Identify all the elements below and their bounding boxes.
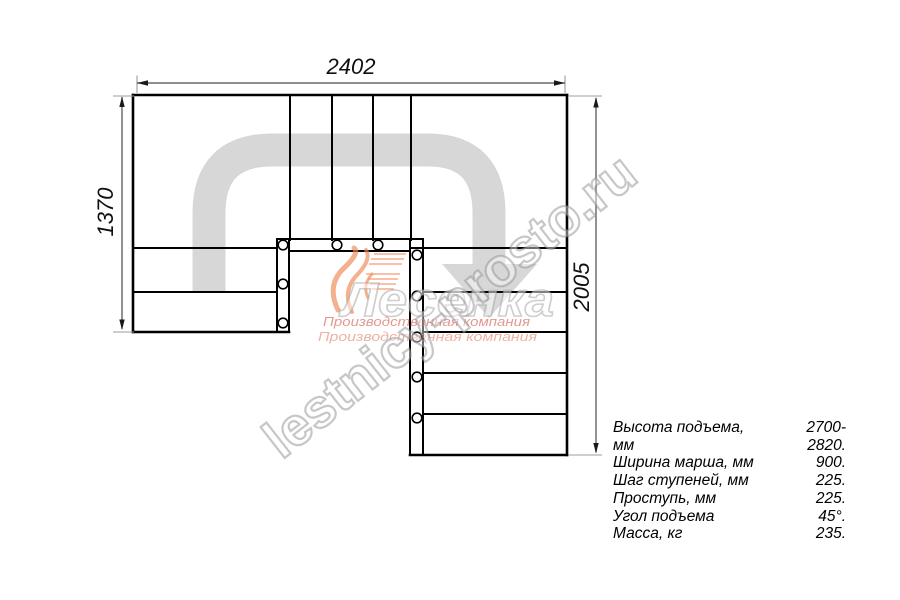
spec-row: Масса, кг 235. [613, 525, 846, 543]
spec-value: 900. [816, 454, 846, 472]
spec-label: Масса, кг [613, 525, 682, 543]
dimension-arrow-icon [119, 97, 124, 108]
dimension-label-left: 1370 [93, 187, 118, 237]
spec-label: Проступь, мм [613, 490, 716, 508]
spec-label: Угол подъема [613, 508, 714, 526]
top-rail-stringer [277, 239, 423, 251]
spec-row: Ширина марша, мм 900. [613, 454, 846, 472]
spec-label: Высота подъема, мм [613, 419, 768, 454]
dimension-top: 2402 [137, 54, 565, 93]
spec-value: 225. [816, 490, 846, 508]
baluster-post [332, 240, 342, 250]
baluster-post [412, 250, 422, 260]
baluster-post [278, 318, 288, 328]
baluster-post [278, 240, 288, 250]
spec-label: Ширина марша, мм [613, 454, 754, 472]
spec-list: Высота подъема, мм 2700-2820. Ширина мар… [613, 419, 846, 543]
spec-value: 235. [816, 525, 846, 543]
spec-row: Угол подъема 45°. [613, 508, 846, 526]
baluster-post [412, 413, 422, 423]
spec-label: Шаг ступеней, мм [613, 472, 749, 490]
spec-value: 225. [816, 472, 846, 490]
dimension-arrow-icon [554, 80, 565, 86]
dimension-label-top: 2402 [326, 54, 376, 79]
baluster-post [373, 240, 383, 250]
dimension-label-right: 2005 [569, 262, 594, 313]
baluster-post [412, 372, 422, 382]
dimension-right: 2005 [569, 96, 602, 455]
spec-row: Проступь, мм 225. [613, 490, 846, 508]
baluster-post [278, 279, 288, 289]
dimension-arrow-icon [137, 80, 148, 86]
spec-value: 2700-2820. [768, 419, 846, 454]
dimension-left: 1370 [93, 96, 134, 332]
spec-value: 45°. [818, 508, 846, 526]
dimension-arrow-icon [593, 443, 598, 454]
spec-row: Высота подъема, мм 2700-2820. [613, 419, 846, 454]
spec-row: Шаг ступеней, мм 225. [613, 472, 846, 490]
dimension-arrow-icon [119, 320, 124, 331]
dimension-arrow-icon [593, 97, 598, 108]
